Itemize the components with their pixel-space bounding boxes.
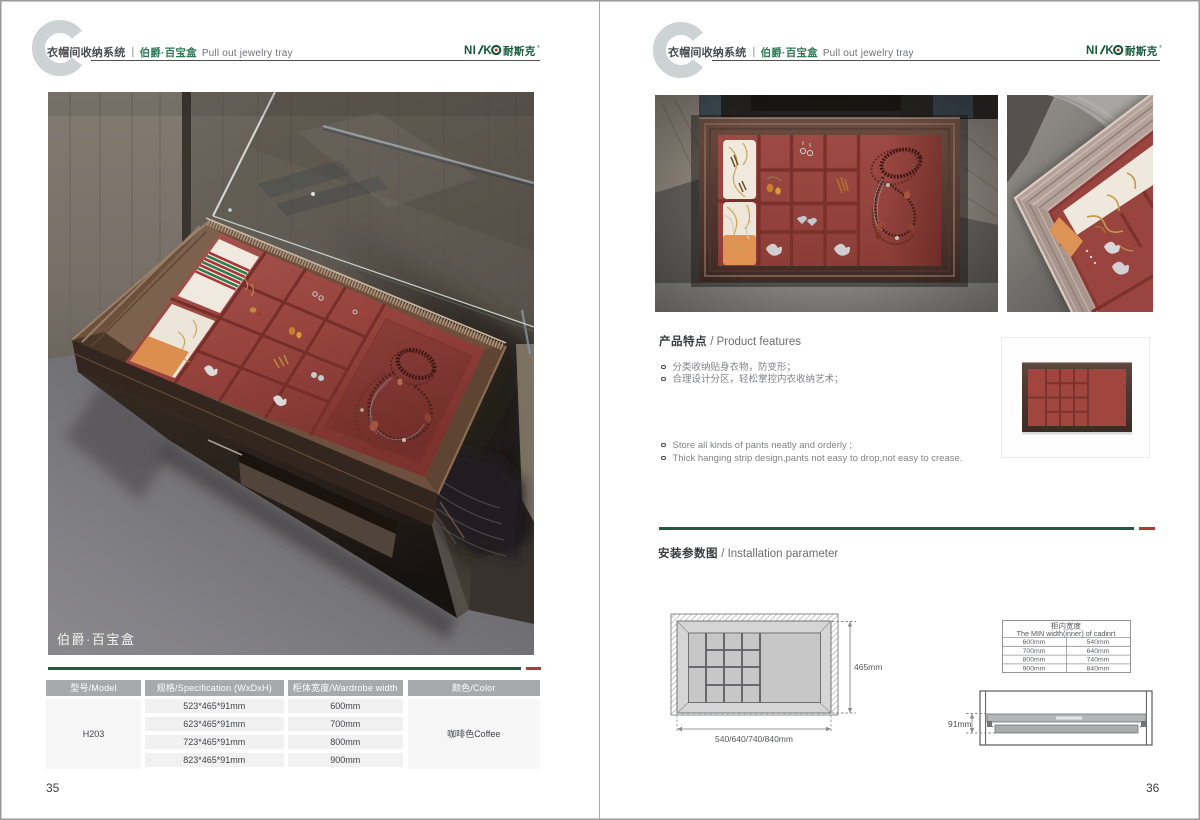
svg-text:K: K (1105, 45, 1114, 57)
svg-text:耐斯克: 耐斯克 (503, 45, 536, 58)
svg-text:900mm: 900mm (1023, 665, 1046, 672)
svg-text:91mm: 91mm (948, 719, 972, 729)
svg-text:640mm: 640mm (1087, 648, 1110, 655)
svg-text:NI: NI (1086, 45, 1098, 57)
svg-text:465mm: 465mm (854, 662, 882, 672)
svg-text:540mm: 540mm (1087, 639, 1110, 646)
svg-text:600mm: 600mm (1023, 639, 1046, 646)
svg-text:540/640/740/840mm: 540/640/740/840mm (715, 734, 793, 744)
svg-text:NI: NI (464, 45, 476, 57)
svg-text:®: ® (1159, 44, 1162, 49)
svg-text:The MIN width(inner) of cadinr: The MIN width(inner) of cadinrt (1017, 629, 1116, 638)
svg-text:K: K (483, 45, 492, 57)
svg-text:700mm: 700mm (1023, 648, 1046, 655)
svg-text:耐斯克: 耐斯克 (1125, 45, 1158, 58)
svg-text:800mm: 800mm (1023, 657, 1046, 664)
svg-text:740mm: 740mm (1087, 657, 1110, 664)
svg-text:840mm: 840mm (1087, 665, 1110, 672)
svg-text:®: ® (537, 44, 540, 49)
